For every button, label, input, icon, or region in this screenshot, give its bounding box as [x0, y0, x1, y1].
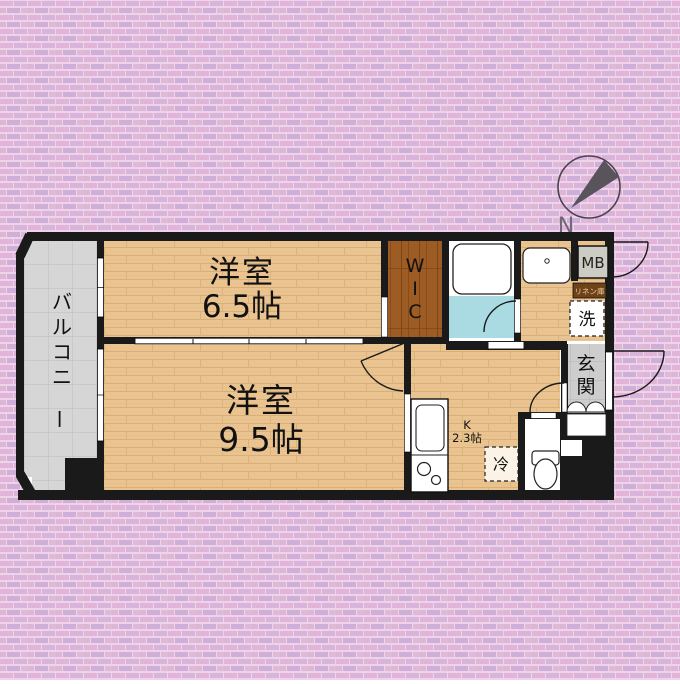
- room2-name: 洋室: [226, 381, 296, 420]
- bath-doorway: [514, 299, 520, 333]
- wic-doorway: [381, 297, 387, 337]
- washer-label: 洗: [579, 310, 596, 330]
- refrigerator-label: 冷: [493, 455, 509, 474]
- pipe-nook: [561, 440, 582, 456]
- room1-size: 6.5帖: [202, 289, 282, 325]
- room1-name: 洋室: [209, 255, 275, 291]
- entry-door-slot: [606, 352, 613, 410]
- kitchen-label: K: [463, 418, 471, 432]
- toilet-bowl: [534, 459, 557, 489]
- toilet-doorway: [531, 413, 556, 419]
- meter-box-label: MB: [581, 254, 604, 272]
- entrance-label: 玄関: [576, 353, 595, 398]
- kitchen-doorway: [405, 394, 411, 452]
- stove-burner-small: [432, 476, 441, 485]
- stove-burner-large: [418, 463, 431, 476]
- linen-closet-label: リネン庫: [575, 286, 605, 296]
- kitchen-sink: [416, 405, 444, 451]
- washbasin-drain: [545, 259, 549, 263]
- washbasin: [523, 248, 570, 283]
- room2-size: 9.5帖: [218, 420, 303, 459]
- genkan-door-slot: [562, 383, 567, 412]
- floorplan-image: N: [0, 0, 680, 680]
- washroom-sliding-door: [488, 342, 524, 350]
- entrance-step: [567, 414, 606, 436]
- kitchen-size: 2.3帖: [452, 431, 482, 445]
- bathtub: [453, 244, 511, 294]
- bathroom-floor: [449, 296, 514, 338]
